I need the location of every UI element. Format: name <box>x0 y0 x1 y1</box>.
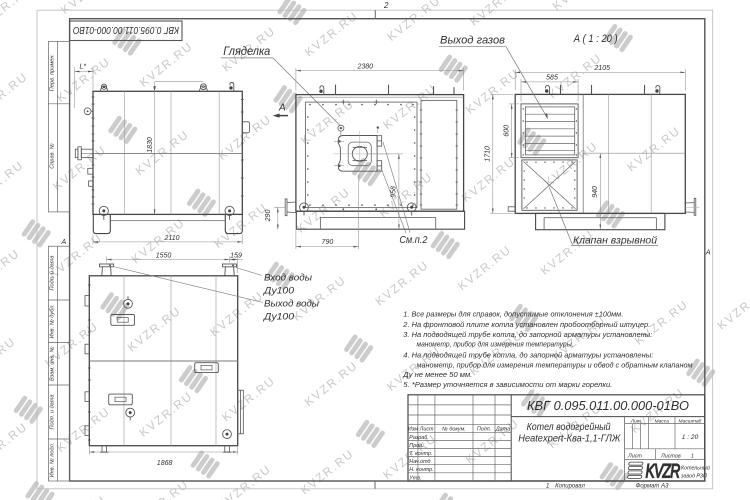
svg-text:Клапан взрывной: Клапан взрывной <box>573 234 657 246</box>
svg-text:КВГ 0.095.011.00.000-01ВО: КВГ 0.095.011.00.000-01ВО <box>73 24 179 36</box>
svg-text:Подп. и дата: Подп. и дата <box>49 394 55 429</box>
svg-text:манометр, прибор для измерения: манометр, прибор для измерения температу… <box>417 340 574 349</box>
svg-text:2380: 2380 <box>357 63 374 70</box>
svg-text:Подп. и дата: Подп. и дата <box>49 255 55 290</box>
svg-text:290: 290 <box>265 210 272 223</box>
svg-text:Инв. № подл.: Инв. № подл. <box>49 443 55 478</box>
svg-text:Перв. примен.: Перв. примен. <box>49 54 55 91</box>
svg-text:1868: 1868 <box>157 460 173 467</box>
svg-text:3. На подводящей трубе котла,: 3. На подводящей трубе котла, до запорно… <box>403 330 652 339</box>
svg-text:1: 1 <box>691 453 694 459</box>
svg-text:Ду100: Ду100 <box>263 312 295 323</box>
svg-text:4. На подводящей трубе котла,: 4. На подводящей трубе котла, до запорно… <box>403 350 653 359</box>
svg-text:Н. контр.: Н. контр. <box>409 467 433 473</box>
svg-text:Выход газов: Выход газов <box>440 34 505 46</box>
svg-text:См.п.2: См.п.2 <box>399 235 427 246</box>
svg-text:Лист: Лист <box>419 427 434 433</box>
svg-text:2: 2 <box>383 1 389 10</box>
svg-text:2. На фронтовой плите котла ус: 2. На фронтовой плите котла установлен п… <box>402 320 650 329</box>
svg-text:Котельный: Котельный <box>681 464 710 471</box>
svg-text:585: 585 <box>546 75 558 82</box>
svg-text:2110: 2110 <box>163 235 179 242</box>
svg-text:А: А <box>705 250 711 257</box>
svg-text:Нач.отд: Нач.отд <box>409 459 430 465</box>
svg-text:KVZR.RU: KVZR.RU <box>141 0 200 2</box>
svg-text:Формат А3: Формат А3 <box>636 483 669 489</box>
svg-text:940: 940 <box>592 186 599 198</box>
svg-text:Т. контр.: Т. контр. <box>409 451 432 457</box>
svg-text:Выход воды: Выход воды <box>264 299 319 310</box>
svg-text:KVZR: KVZR <box>646 462 681 483</box>
svg-text:1: 1 <box>546 483 549 489</box>
svg-text:Лит.: Лит. <box>630 418 642 424</box>
svg-text:Справ. №: Справ. № <box>49 143 55 168</box>
svg-text:манометр, прибор для измерения: манометр, прибор для измерения температу… <box>417 360 693 369</box>
svg-text:А: А <box>61 239 67 246</box>
svg-text:KVZR.RU: KVZR.RU <box>0 0 35 32</box>
svg-text:завод РЗП: завод РЗП <box>680 473 707 479</box>
svg-text:А: А <box>278 102 286 113</box>
svg-text:А ( 1 : 20 ): А ( 1 : 20 ) <box>573 33 618 45</box>
svg-text:5. *Размер уточняется в зависи: 5. *Размер уточняется в зависимости от м… <box>403 380 612 389</box>
svg-text:Инв. № дубл.: Инв. № дубл. <box>49 304 55 338</box>
svg-text:№ докум.: № докум. <box>442 427 466 433</box>
svg-text:1 : 20: 1 : 20 <box>682 434 699 441</box>
svg-text:Гляделка: Гляделка <box>223 44 270 58</box>
svg-text:Пров.: Пров. <box>409 443 423 449</box>
svg-text:1550: 1550 <box>156 252 172 259</box>
svg-text:1710: 1710 <box>485 146 492 162</box>
svg-text:КВГ 0.095.011.00.000-01ВО: КВГ 0.095.011.00.000-01ВО <box>527 398 689 413</box>
svg-text:Котел водогрейный: Котел водогрейный <box>527 422 611 433</box>
svg-text:1. Все размеры для справок, до: 1. Все размеры для справок, допустимые о… <box>403 310 623 319</box>
svg-text:KVZR.RU: KVZR.RU <box>58 0 117 17</box>
svg-text:Вход воды: Вход воды <box>264 273 312 284</box>
svg-text:1830: 1830 <box>147 137 154 153</box>
svg-text:Масса: Масса <box>654 418 669 424</box>
svg-text:790: 790 <box>322 239 334 246</box>
svg-text:600: 600 <box>504 125 511 137</box>
svg-text:159: 159 <box>230 252 242 259</box>
svg-text:Масштаб: Масштаб <box>678 418 701 424</box>
svg-text:2105: 2105 <box>593 65 610 72</box>
svg-text:Heatexpert-Ква-1,1-ГЛЖ: Heatexpert-Ква-1,1-ГЛЖ <box>518 433 621 444</box>
svg-text:Подп.: Подп. <box>477 427 491 433</box>
svg-text:Взам. инв. №: Взам. инв. № <box>49 346 55 381</box>
svg-text:Ду100: Ду100 <box>263 286 295 297</box>
svg-text:Лист: Лист <box>627 453 642 459</box>
svg-text:Листов: Листов <box>660 453 681 459</box>
svg-text:Дата: Дата <box>495 427 510 433</box>
svg-text:Утв.: Утв. <box>408 475 421 481</box>
svg-text:Копировал: Копировал <box>555 483 585 489</box>
svg-text:L*: L* <box>80 64 87 71</box>
svg-text:Изм: Изм <box>408 427 418 433</box>
svg-text:Ду не менее 50 мм.: Ду не менее 50 мм. <box>402 370 472 379</box>
svg-text:Разраб.: Разраб. <box>409 435 429 441</box>
